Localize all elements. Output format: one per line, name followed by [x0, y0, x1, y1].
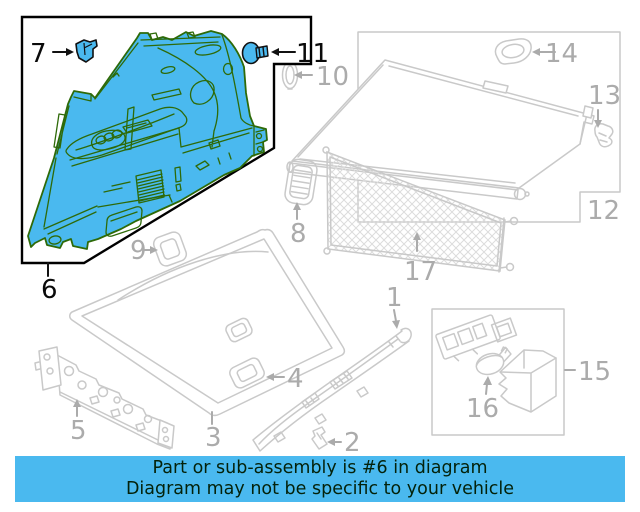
callout-5-label: 5 [70, 416, 87, 446]
callout-7-label: 7 [30, 39, 47, 69]
callout-2-label: 2 [344, 428, 361, 458]
callout-4-label: 4 [287, 364, 304, 394]
callout-6-label: 6 [41, 275, 58, 305]
callout-16-label: 16 [466, 394, 499, 424]
callout-17-label: 17 [404, 257, 437, 287]
callout-9-label: 9 [130, 236, 147, 266]
callout-14-label: 14 [545, 39, 578, 69]
diagram-notice-banner: Part or sub-assembly is #6 in diagram Di… [15, 456, 625, 502]
callout-8-label: 8 [290, 219, 307, 249]
trim-bezel [152, 230, 189, 268]
callout-15-label: 15 [578, 357, 611, 387]
lamp-housing [499, 350, 556, 412]
parts-diagram-page: 7 11 6 1 2 3 4 5 8 9 10 [0, 0, 640, 512]
callout-3-label: 3 [205, 423, 222, 453]
callout-10-label: 10 [316, 62, 349, 92]
parts-diagram: 7 11 6 1 2 3 4 5 8 9 10 [0, 0, 640, 512]
lamp-lens [435, 315, 502, 366]
callout-13-label: 13 [588, 81, 621, 111]
banner-line-1: Part or sub-assembly is #6 in diagram [15, 458, 625, 479]
lamp-lens-cap [492, 318, 517, 342]
cover-end-bezel [495, 39, 531, 64]
cover-retainer-clip [595, 124, 613, 147]
callout-12-label: 12 [587, 196, 620, 226]
highlight-callout-box-group [22, 17, 311, 263]
banner-line-2: Diagram may not be specific to your vehi… [15, 479, 625, 500]
sill-clip [312, 427, 327, 449]
callout-1-label: 1 [386, 283, 403, 313]
